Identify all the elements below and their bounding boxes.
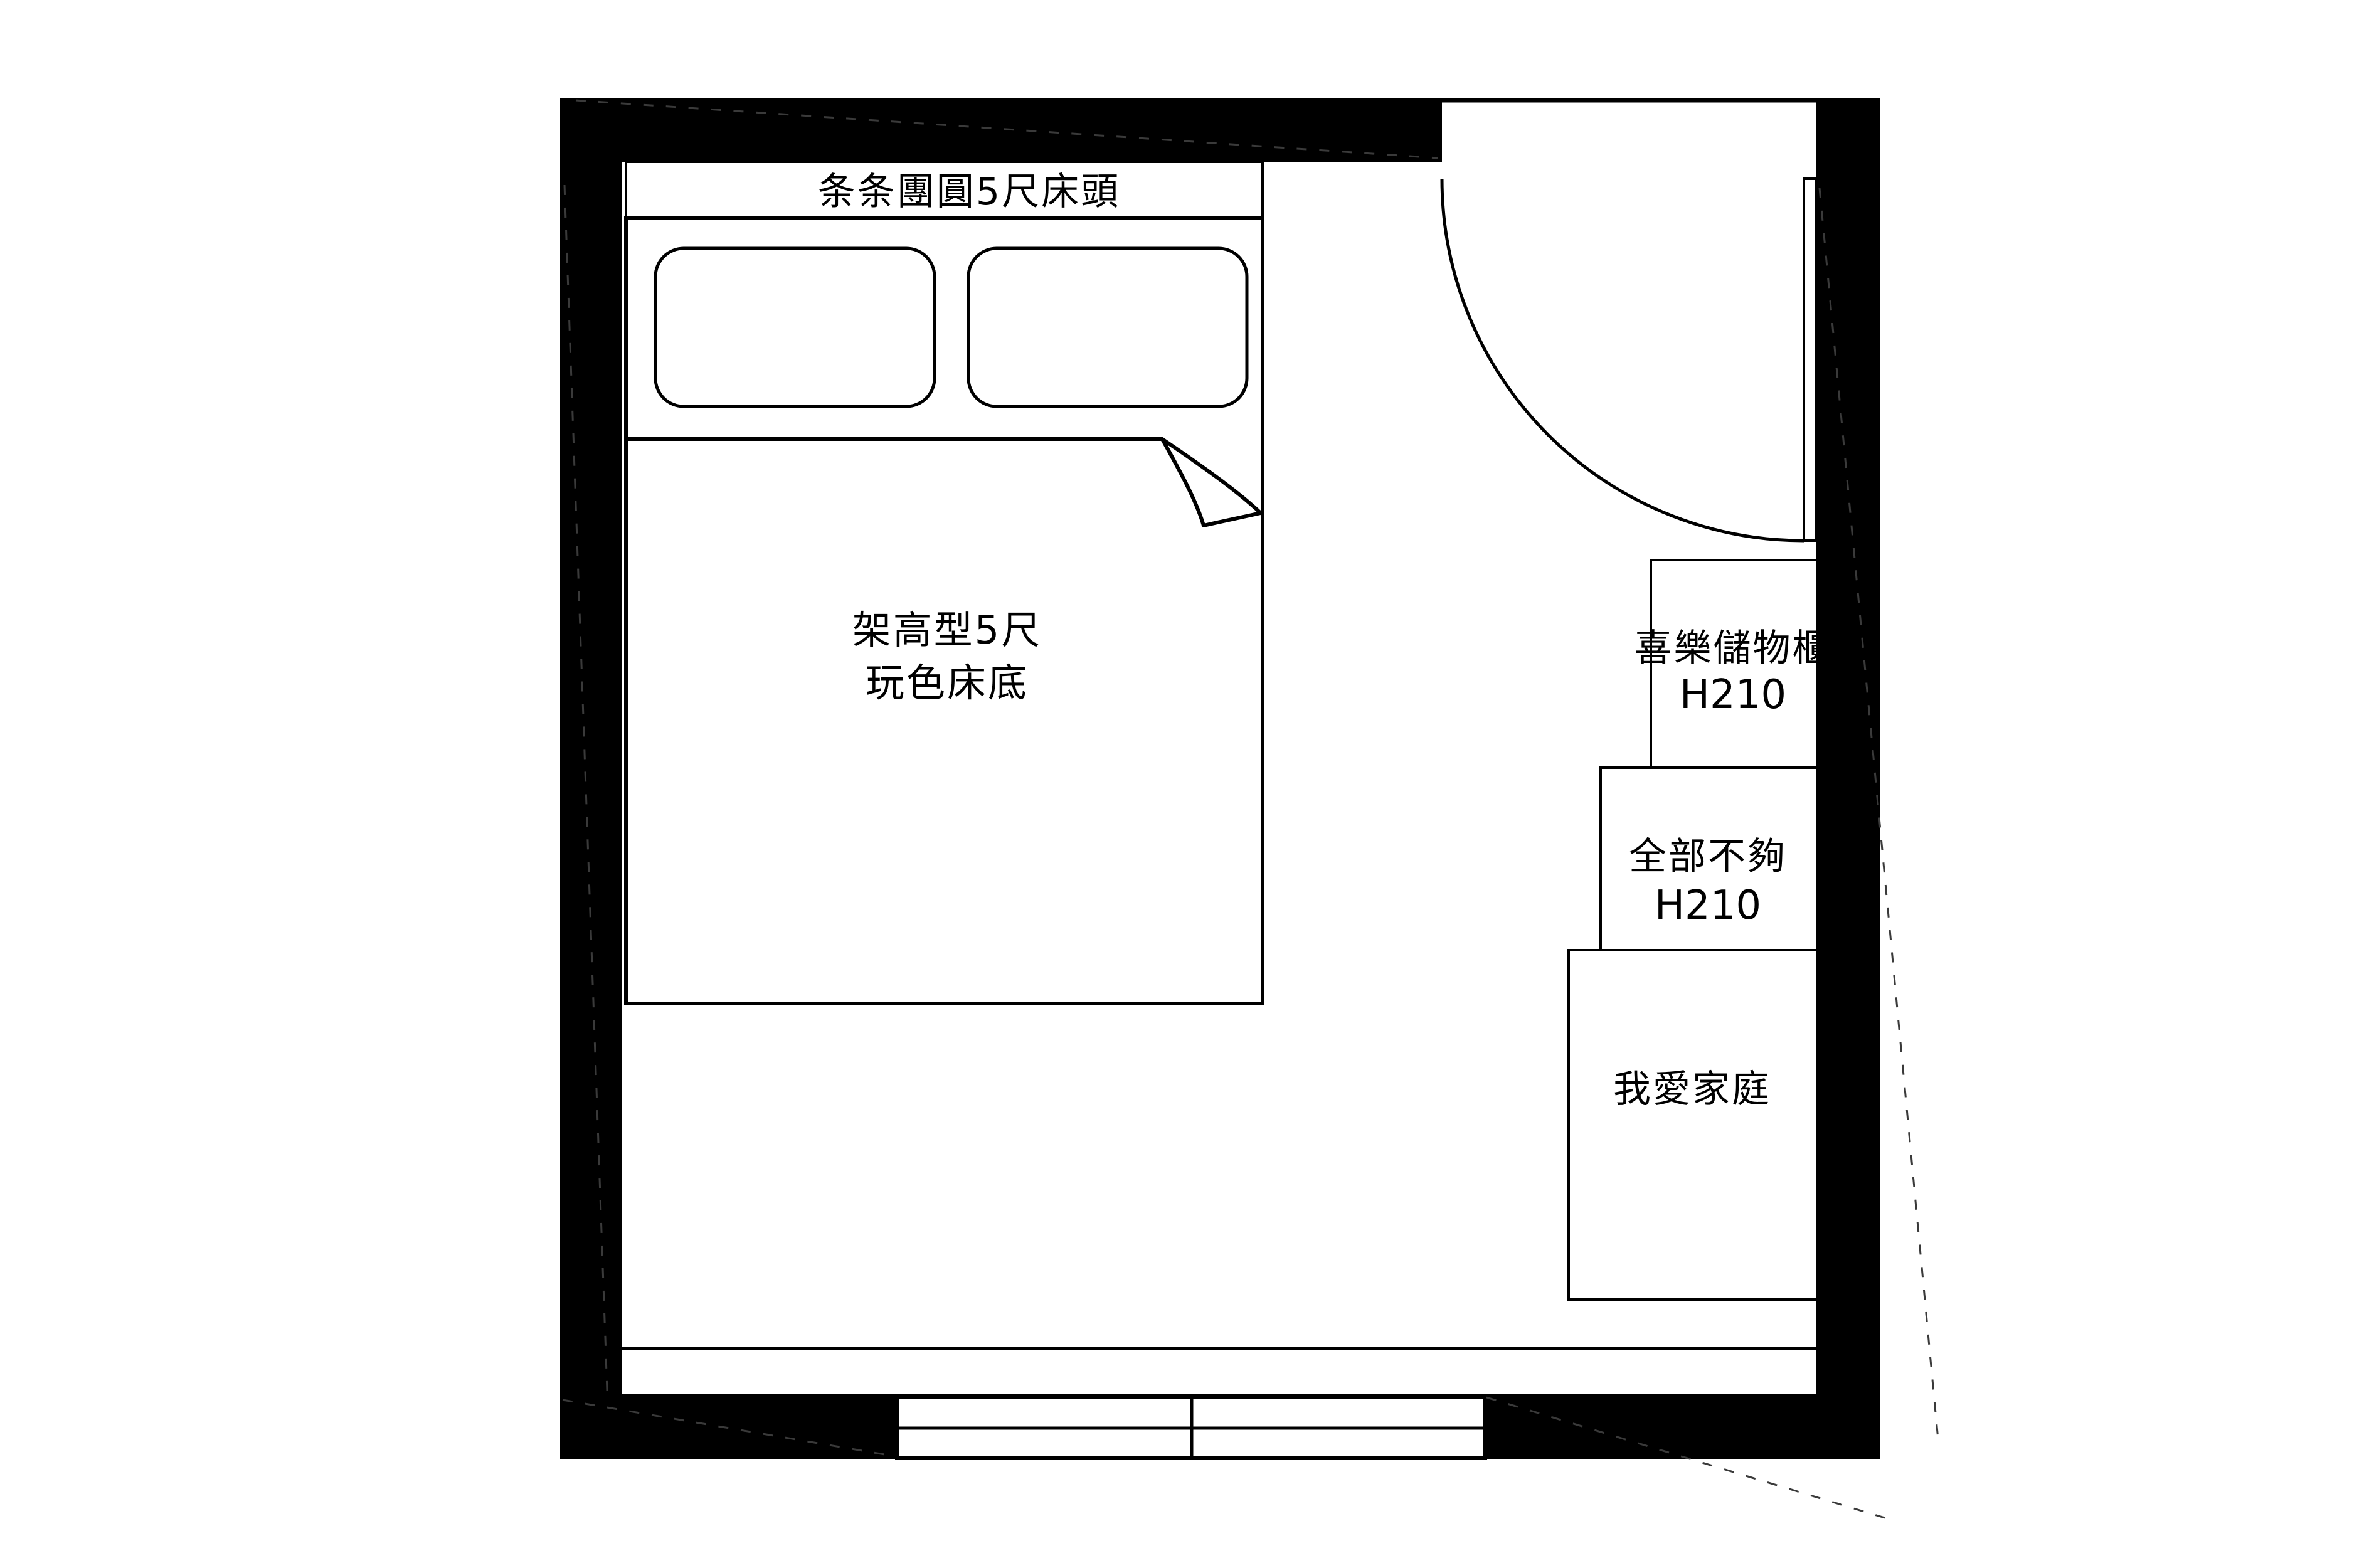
bed-label-line2: 玩色床底 bbox=[866, 660, 1029, 706]
window-group bbox=[897, 1397, 1485, 1458]
cabinet-top-name: 喜樂儲物櫃 bbox=[1635, 627, 1832, 670]
pillow-left bbox=[655, 248, 935, 406]
cabinet-top-size: H210 bbox=[1680, 672, 1786, 718]
bed-label-line1: 架高型5尺 bbox=[852, 607, 1042, 653]
cabinet-bottom-name: 我愛家庭 bbox=[1613, 1067, 1771, 1111]
pillow-right bbox=[968, 248, 1247, 406]
cabinet-middle-size: H210 bbox=[1655, 882, 1761, 929]
door-leaf bbox=[1804, 179, 1816, 541]
right-wall bbox=[1816, 98, 1880, 1459]
cabinet-middle-name: 全部不夠 bbox=[1629, 835, 1787, 879]
cabinet-bottom-box bbox=[1569, 950, 1817, 1300]
bed-group: 条条團圓5尺床頭 架高型5尺 玩色床底 bbox=[626, 162, 1263, 1004]
floorplan-page: 条条團圓5尺床頭 架高型5尺 玩色床底 喜樂儲物櫃 H210 bbox=[0, 0, 2379, 1568]
headboard-label: 条条團圓5尺床頭 bbox=[818, 170, 1120, 214]
